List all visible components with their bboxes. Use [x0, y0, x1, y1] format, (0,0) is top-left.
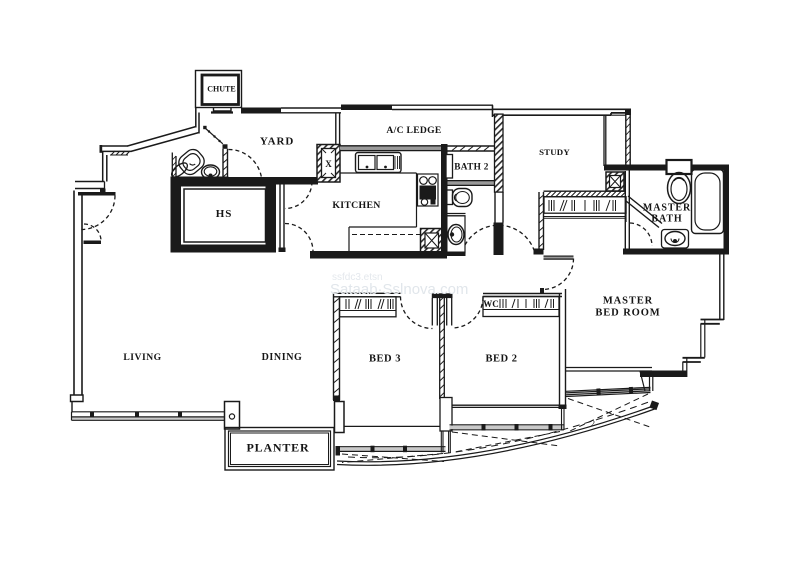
svg-text:HS: HS [216, 208, 232, 220]
svg-text:YARD: YARD [260, 136, 294, 148]
svg-text:BATH: BATH [651, 214, 682, 225]
svg-text:CHUTE: CHUTE [207, 85, 235, 94]
svg-text:MASTER: MASTER [603, 296, 653, 307]
svg-text:BED 2: BED 2 [486, 354, 518, 365]
svg-text:KITCHEN: KITCHEN [332, 200, 380, 211]
svg-text:PLANTER: PLANTER [247, 441, 310, 455]
svg-text:WC: WC [483, 299, 499, 309]
svg-text:Sataab·Sslnova.com: Sataab·Sslnova.com [330, 281, 468, 298]
svg-text:DINING: DINING [262, 352, 303, 363]
svg-text:BED ROOM: BED ROOM [595, 308, 660, 319]
svg-text:MASTER: MASTER [643, 203, 691, 214]
svg-text:X: X [325, 159, 332, 169]
svg-text:A/C LEDGE: A/C LEDGE [386, 125, 441, 136]
svg-text:2: 2 [591, 419, 595, 428]
svg-text:BED 3: BED 3 [369, 354, 401, 365]
svg-text:BATH 2: BATH 2 [454, 163, 488, 173]
svg-text:LIVING: LIVING [123, 352, 161, 363]
svg-text:STUDY: STUDY [539, 147, 570, 157]
